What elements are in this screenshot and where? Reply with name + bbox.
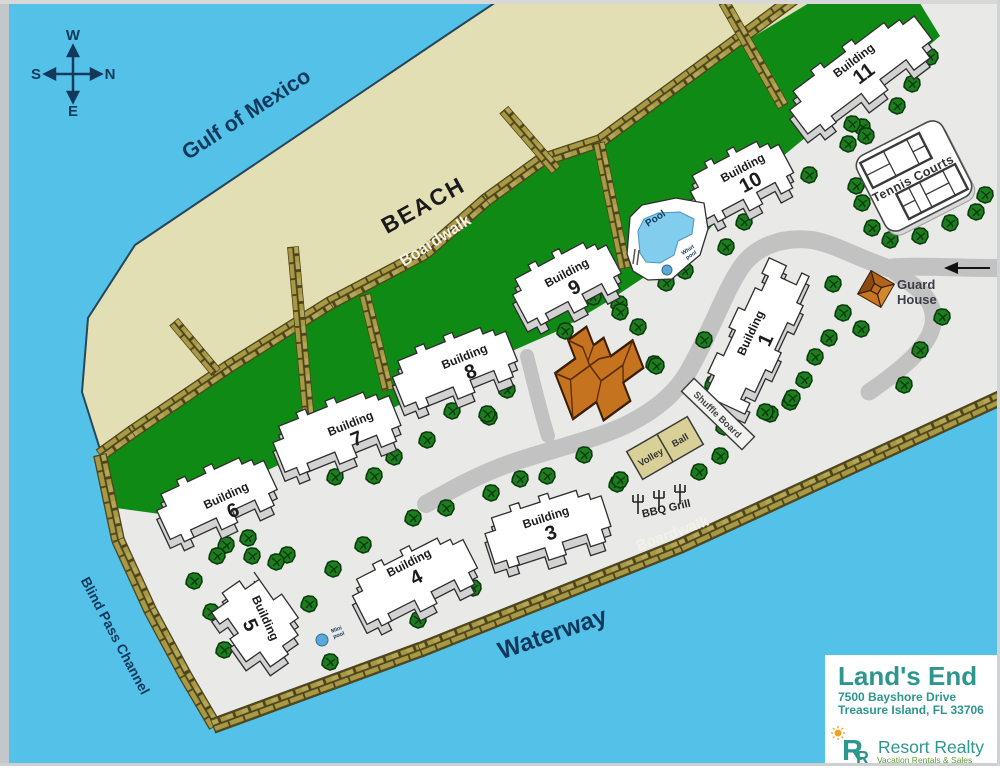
svg-text:7500 Bayshore Drive: 7500 Bayshore Drive	[838, 690, 956, 704]
svg-text:E: E	[68, 103, 78, 120]
svg-text:Guard: Guard	[897, 277, 935, 292]
svg-text:S: S	[31, 66, 41, 83]
svg-text:House: House	[897, 292, 937, 307]
svg-text:Resort Realty: Resort Realty	[878, 737, 984, 757]
svg-text:Treasure Island, FL 33706: Treasure Island, FL 33706	[838, 703, 984, 717]
svg-text:Land's End: Land's End	[838, 661, 977, 691]
svg-text:N: N	[105, 66, 116, 83]
svg-text:W: W	[66, 27, 81, 44]
